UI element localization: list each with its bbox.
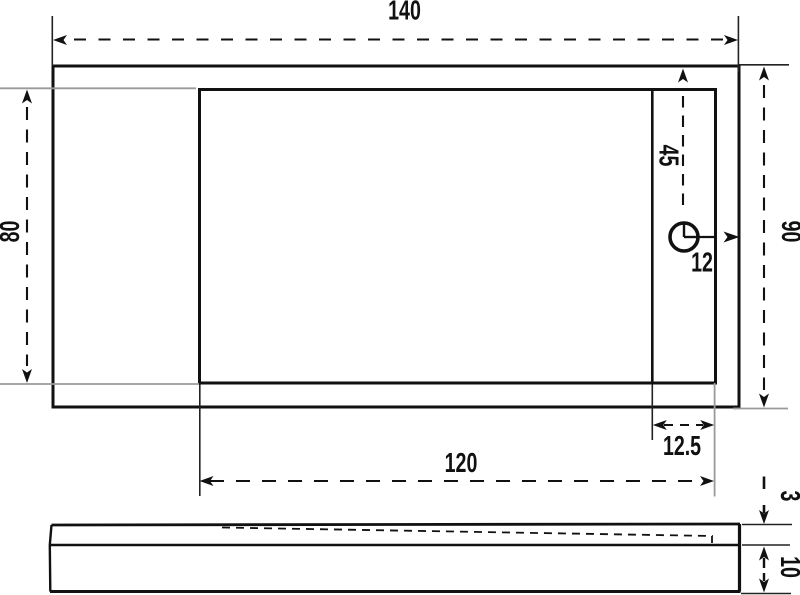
svg-text:10: 10 [774, 556, 800, 578]
svg-text:45: 45 [653, 145, 684, 167]
svg-text:80: 80 [0, 221, 26, 243]
svg-text:90: 90 [775, 221, 800, 243]
svg-text:120: 120 [445, 448, 478, 479]
svg-text:3: 3 [774, 491, 800, 502]
svg-text:12.5: 12.5 [663, 431, 701, 462]
svg-text:140: 140 [388, 0, 421, 26]
svg-text:12: 12 [691, 247, 713, 278]
